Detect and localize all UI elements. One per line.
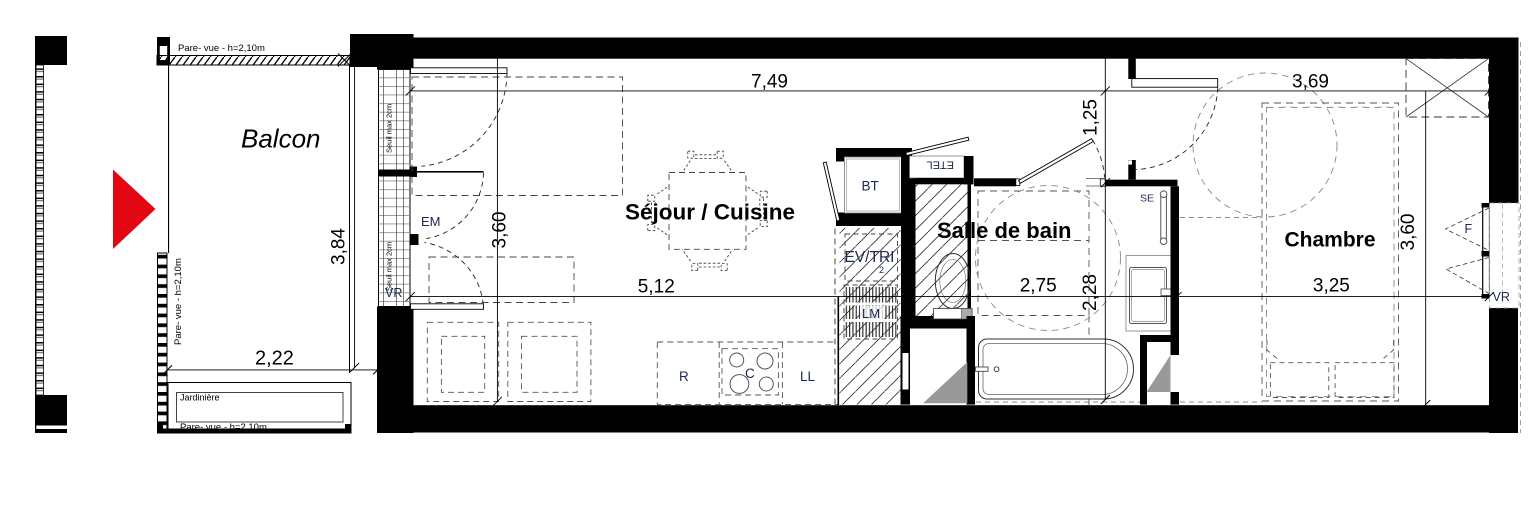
svg-text:VR: VR <box>385 286 402 300</box>
svg-text:1,25: 1,25 <box>1081 99 1102 136</box>
svg-text:2,22: 2,22 <box>255 348 294 370</box>
svg-text:Jardinière: Jardinière <box>180 393 220 403</box>
svg-text:F: F <box>1465 222 1473 236</box>
svg-text:VR: VR <box>1493 290 1510 304</box>
svg-text:Séjour / Cuisine: Séjour / Cuisine <box>625 200 795 225</box>
svg-text:3,69: 3,69 <box>1292 71 1329 92</box>
svg-text:2: 2 <box>879 265 884 275</box>
svg-text:Seuil max 2cm: Seuil max 2cm <box>385 242 394 291</box>
svg-text:3,60: 3,60 <box>490 212 511 249</box>
svg-text:C: C <box>745 366 755 381</box>
svg-text:Seuil max 2cm: Seuil max 2cm <box>385 104 394 153</box>
svg-text:3,25: 3,25 <box>1313 276 1350 297</box>
svg-text:Salle de bain: Salle de bain <box>937 218 1072 243</box>
svg-text:3,84: 3,84 <box>329 228 350 265</box>
svg-text:2,28: 2,28 <box>1080 274 1101 311</box>
svg-text:LM: LM <box>862 306 880 321</box>
svg-text:Chambre: Chambre <box>1285 229 1376 252</box>
svg-text:7,49: 7,49 <box>751 71 788 92</box>
svg-text:SE: SE <box>1140 193 1154 205</box>
svg-text:LL: LL <box>800 369 816 384</box>
svg-text:Balcon: Balcon <box>241 124 321 154</box>
svg-text:EV/TRI: EV/TRI <box>845 249 895 266</box>
svg-text:3,60: 3,60 <box>1398 214 1419 251</box>
svg-text:5,12: 5,12 <box>638 277 675 298</box>
svg-text:BT: BT <box>862 179 879 194</box>
svg-text:EM: EM <box>421 214 441 229</box>
svg-text:Pare- vue - h=2,10m: Pare- vue - h=2,10m <box>173 258 184 345</box>
svg-text:R: R <box>679 369 689 384</box>
svg-text:2,75: 2,75 <box>1020 276 1057 297</box>
svg-text:ETEL: ETEL <box>926 159 954 171</box>
svg-text:Pare- vue - h=2,10m: Pare- vue - h=2,10m <box>178 43 265 54</box>
